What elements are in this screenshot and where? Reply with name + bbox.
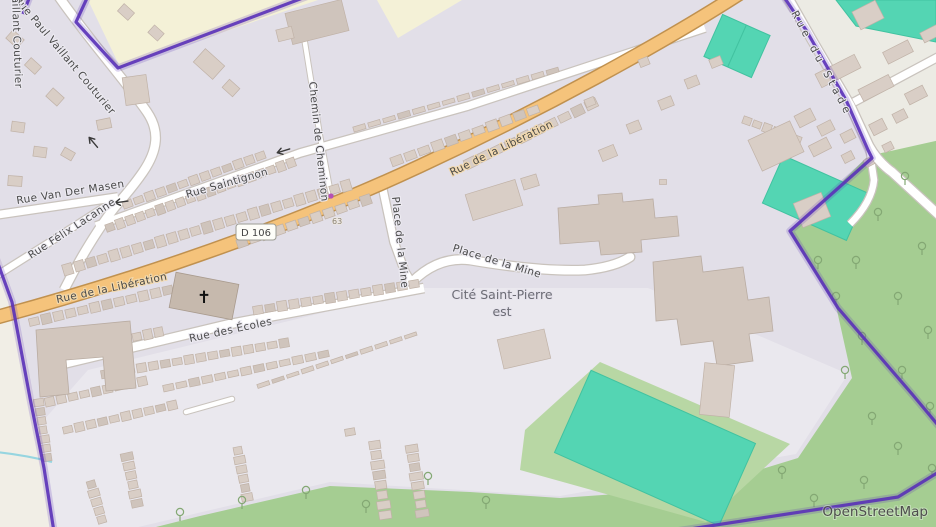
building — [405, 444, 418, 453]
building — [113, 296, 125, 307]
building — [413, 490, 425, 499]
building — [137, 376, 148, 387]
building — [313, 295, 324, 304]
building — [137, 290, 149, 302]
building — [74, 422, 85, 433]
building — [167, 400, 178, 411]
building — [40, 313, 52, 325]
building — [11, 121, 25, 133]
building — [234, 455, 246, 465]
building — [265, 303, 276, 312]
building — [238, 474, 249, 483]
building — [407, 453, 419, 462]
building — [255, 343, 266, 352]
building — [125, 471, 137, 481]
building — [267, 341, 278, 349]
place-label-cite-line2: est — [492, 304, 511, 319]
building — [97, 417, 108, 426]
building — [240, 483, 250, 492]
building — [373, 470, 386, 480]
building — [219, 349, 230, 357]
building — [349, 289, 360, 299]
building — [371, 460, 385, 470]
building — [90, 386, 101, 397]
building — [292, 355, 304, 365]
building — [276, 300, 287, 312]
building — [240, 366, 252, 376]
map-canvas[interactable]: ✝ Rue Paul Vaillan — [0, 0, 936, 527]
building — [8, 176, 23, 187]
building — [369, 440, 381, 450]
building — [101, 299, 113, 310]
building — [379, 510, 392, 520]
building — [253, 305, 264, 315]
building — [52, 310, 64, 321]
building — [375, 480, 387, 490]
building — [184, 354, 195, 364]
building — [279, 338, 290, 348]
attribution-text[interactable]: OpenStreetMap — [822, 504, 928, 520]
building — [409, 463, 420, 472]
building — [241, 493, 253, 503]
building — [65, 308, 77, 319]
building — [660, 180, 667, 185]
building — [324, 292, 335, 304]
building — [207, 351, 218, 360]
building — [336, 291, 347, 302]
building — [132, 332, 142, 341]
building — [377, 490, 388, 500]
building — [136, 363, 147, 373]
building — [122, 74, 150, 105]
building — [344, 428, 355, 437]
road-ref-text: D 106 — [241, 228, 271, 239]
building — [288, 299, 299, 310]
building — [243, 344, 254, 354]
building — [371, 450, 382, 460]
building — [188, 377, 200, 387]
building — [415, 500, 426, 509]
building — [144, 406, 155, 415]
building — [89, 301, 101, 313]
building — [44, 396, 55, 407]
building — [377, 500, 391, 510]
building — [142, 329, 153, 341]
building — [361, 287, 372, 296]
building — [233, 446, 243, 455]
building — [150, 287, 162, 298]
building — [153, 327, 164, 338]
building — [172, 357, 183, 365]
building — [120, 411, 131, 422]
building — [85, 419, 96, 429]
building — [132, 408, 143, 418]
building — [372, 284, 383, 296]
house-number: 63 — [332, 217, 342, 226]
church-cross-icon: ✝ — [197, 288, 211, 308]
building — [148, 361, 159, 371]
building — [56, 394, 67, 404]
building — [160, 359, 171, 368]
building — [236, 465, 248, 474]
building — [33, 146, 47, 158]
building — [231, 346, 242, 356]
building — [699, 363, 734, 418]
road-ref-badge: D 106 — [236, 224, 276, 240]
building — [384, 283, 395, 294]
building — [411, 481, 424, 490]
building — [301, 297, 312, 307]
place-label-cite-line1: Cité Saint-Pierre — [451, 287, 552, 302]
building — [128, 480, 139, 489]
building — [195, 353, 206, 363]
